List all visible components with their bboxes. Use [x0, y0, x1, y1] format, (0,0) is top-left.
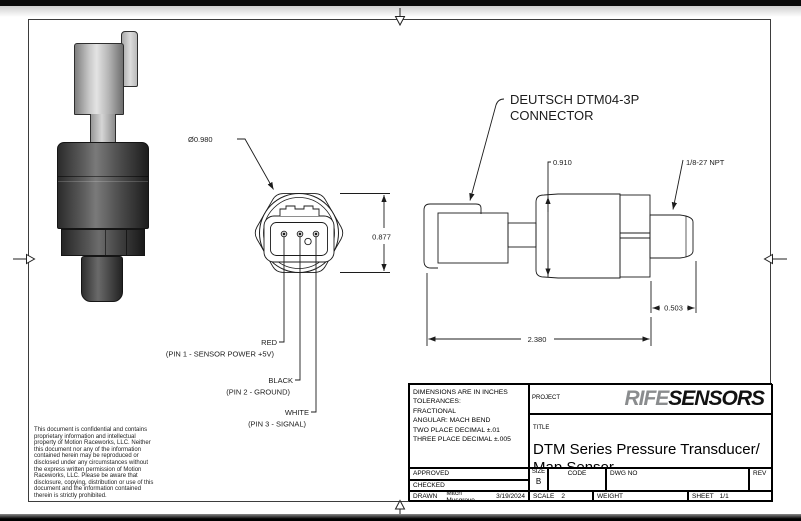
title-label: TITLE — [533, 425, 549, 431]
deutsch-callout-line2: CONNECTOR — [510, 108, 594, 123]
connector-housing — [438, 213, 508, 263]
tolerance-line: FRACTIONAL — [413, 407, 526, 416]
logo-rife: RIFE — [624, 387, 668, 410]
dwgno-cell: DWG NO — [606, 468, 749, 491]
size-value: B — [530, 477, 547, 486]
scale-value: 2 — [561, 493, 565, 500]
code-cell: CODE — [548, 468, 606, 491]
weight-label: WEIGHT — [597, 493, 623, 500]
deutsch-leader — [470, 99, 504, 201]
tolerance-line: TOLERANCES: — [413, 397, 526, 406]
sheet-value: 1/1 — [720, 493, 729, 500]
scale-label: SCALE — [533, 493, 554, 500]
thread-length-dim: 0.503 — [664, 304, 683, 313]
drawn-date: 3/19/2024 — [496, 493, 525, 500]
drawn-label: DRAWN — [413, 493, 437, 500]
title-cell: TITLE DTM Series Pressure Transducer/ Ma… — [529, 414, 773, 468]
drawn-by: Mitch Musgrove — [446, 491, 487, 502]
deutsch-callout-line1: DEUTSCH DTM04-3P — [510, 92, 639, 107]
checked-cell: CHECKED — [409, 480, 529, 491]
side-height-dim: 0.910 — [553, 158, 572, 167]
front-dia-dim: Ø0.980 — [188, 135, 213, 144]
pin3-desc-label: (PIN 3 - SIGNAL) — [248, 420, 306, 429]
sheet-cell: SHEET 1/1 — [688, 491, 773, 502]
overall-length-dim: 2.380 — [528, 335, 547, 344]
npt-leader — [673, 160, 683, 210]
drawing-sheet: Ø0.980 0.877 RED (PIN 1 - SENSOR POWER +… — [0, 0, 801, 521]
window-bottom-bar — [0, 514, 801, 521]
project-cell: PROJECT RIFESENSORS — [529, 384, 773, 414]
drawing-title-line2: Map Sensor — [533, 459, 769, 469]
front-height-dim: 0.877 — [372, 233, 391, 242]
title-block: DIMENSIONS ARE IN INCHES TOLERANCES: FRA… — [408, 383, 772, 501]
tolerance-notes: DIMENSIONS ARE IN INCHES TOLERANCES: FRA… — [409, 384, 529, 468]
pin1-color-label: RED — [261, 338, 277, 347]
npt-label: 1/8-27 NPT — [686, 158, 725, 167]
pin2-color-label: BLACK — [268, 376, 293, 385]
thread-outline — [650, 215, 693, 258]
drawn-cell: DRAWN Mitch Musgrove 3/19/2024 — [409, 491, 529, 502]
left-center-arrow-icon — [27, 255, 35, 264]
connector-shell — [424, 204, 481, 268]
scale-cell: SCALE 2 — [529, 491, 593, 502]
logo-sensors: SENSORS — [668, 387, 764, 410]
weight-cell: WEIGHT — [593, 491, 688, 502]
rife-sensors-logo: RIFESENSORS — [624, 387, 764, 411]
neck — [508, 223, 536, 247]
dia-leader — [237, 139, 274, 190]
project-label: PROJECT — [532, 395, 560, 401]
tolerance-line: TWO PLACE DECIMAL ±.01 — [413, 426, 526, 435]
tolerance-line: ANGULAR: MACH BEND — [413, 416, 526, 425]
pin1-desc-label: (PIN 1 - SENSOR POWER +5V) — [166, 350, 275, 359]
side-view — [424, 99, 696, 346]
tolerance-line: THREE PLACE DECIMAL ±.005 — [413, 435, 526, 444]
size-cell: SIZE B — [529, 468, 548, 491]
pin3-color-label: WHITE — [285, 408, 309, 417]
approved-cell: APPROVED — [409, 468, 529, 480]
bottom-center-arrow-icon — [396, 501, 405, 510]
drawing-title-line1: DTM Series Pressure Transducer/ — [533, 441, 769, 459]
tolerance-line: DIMENSIONS ARE IN INCHES — [413, 388, 526, 397]
body-outline — [536, 194, 620, 278]
drawing-title: DTM Series Pressure Transducer/ Map Sens… — [533, 441, 769, 468]
size-label: SIZE — [530, 469, 547, 475]
right-center-arrow-icon — [765, 255, 773, 264]
confidentiality-notice: This document is confidential and contai… — [34, 427, 155, 500]
rev-cell: REV — [749, 468, 773, 491]
front-view — [237, 139, 390, 412]
sheet-label: SHEET — [692, 493, 714, 500]
top-center-arrow-icon — [396, 17, 405, 26]
hex-side — [620, 195, 650, 277]
pin2-desc-label: (PIN 2 - GROUND) — [226, 388, 290, 397]
